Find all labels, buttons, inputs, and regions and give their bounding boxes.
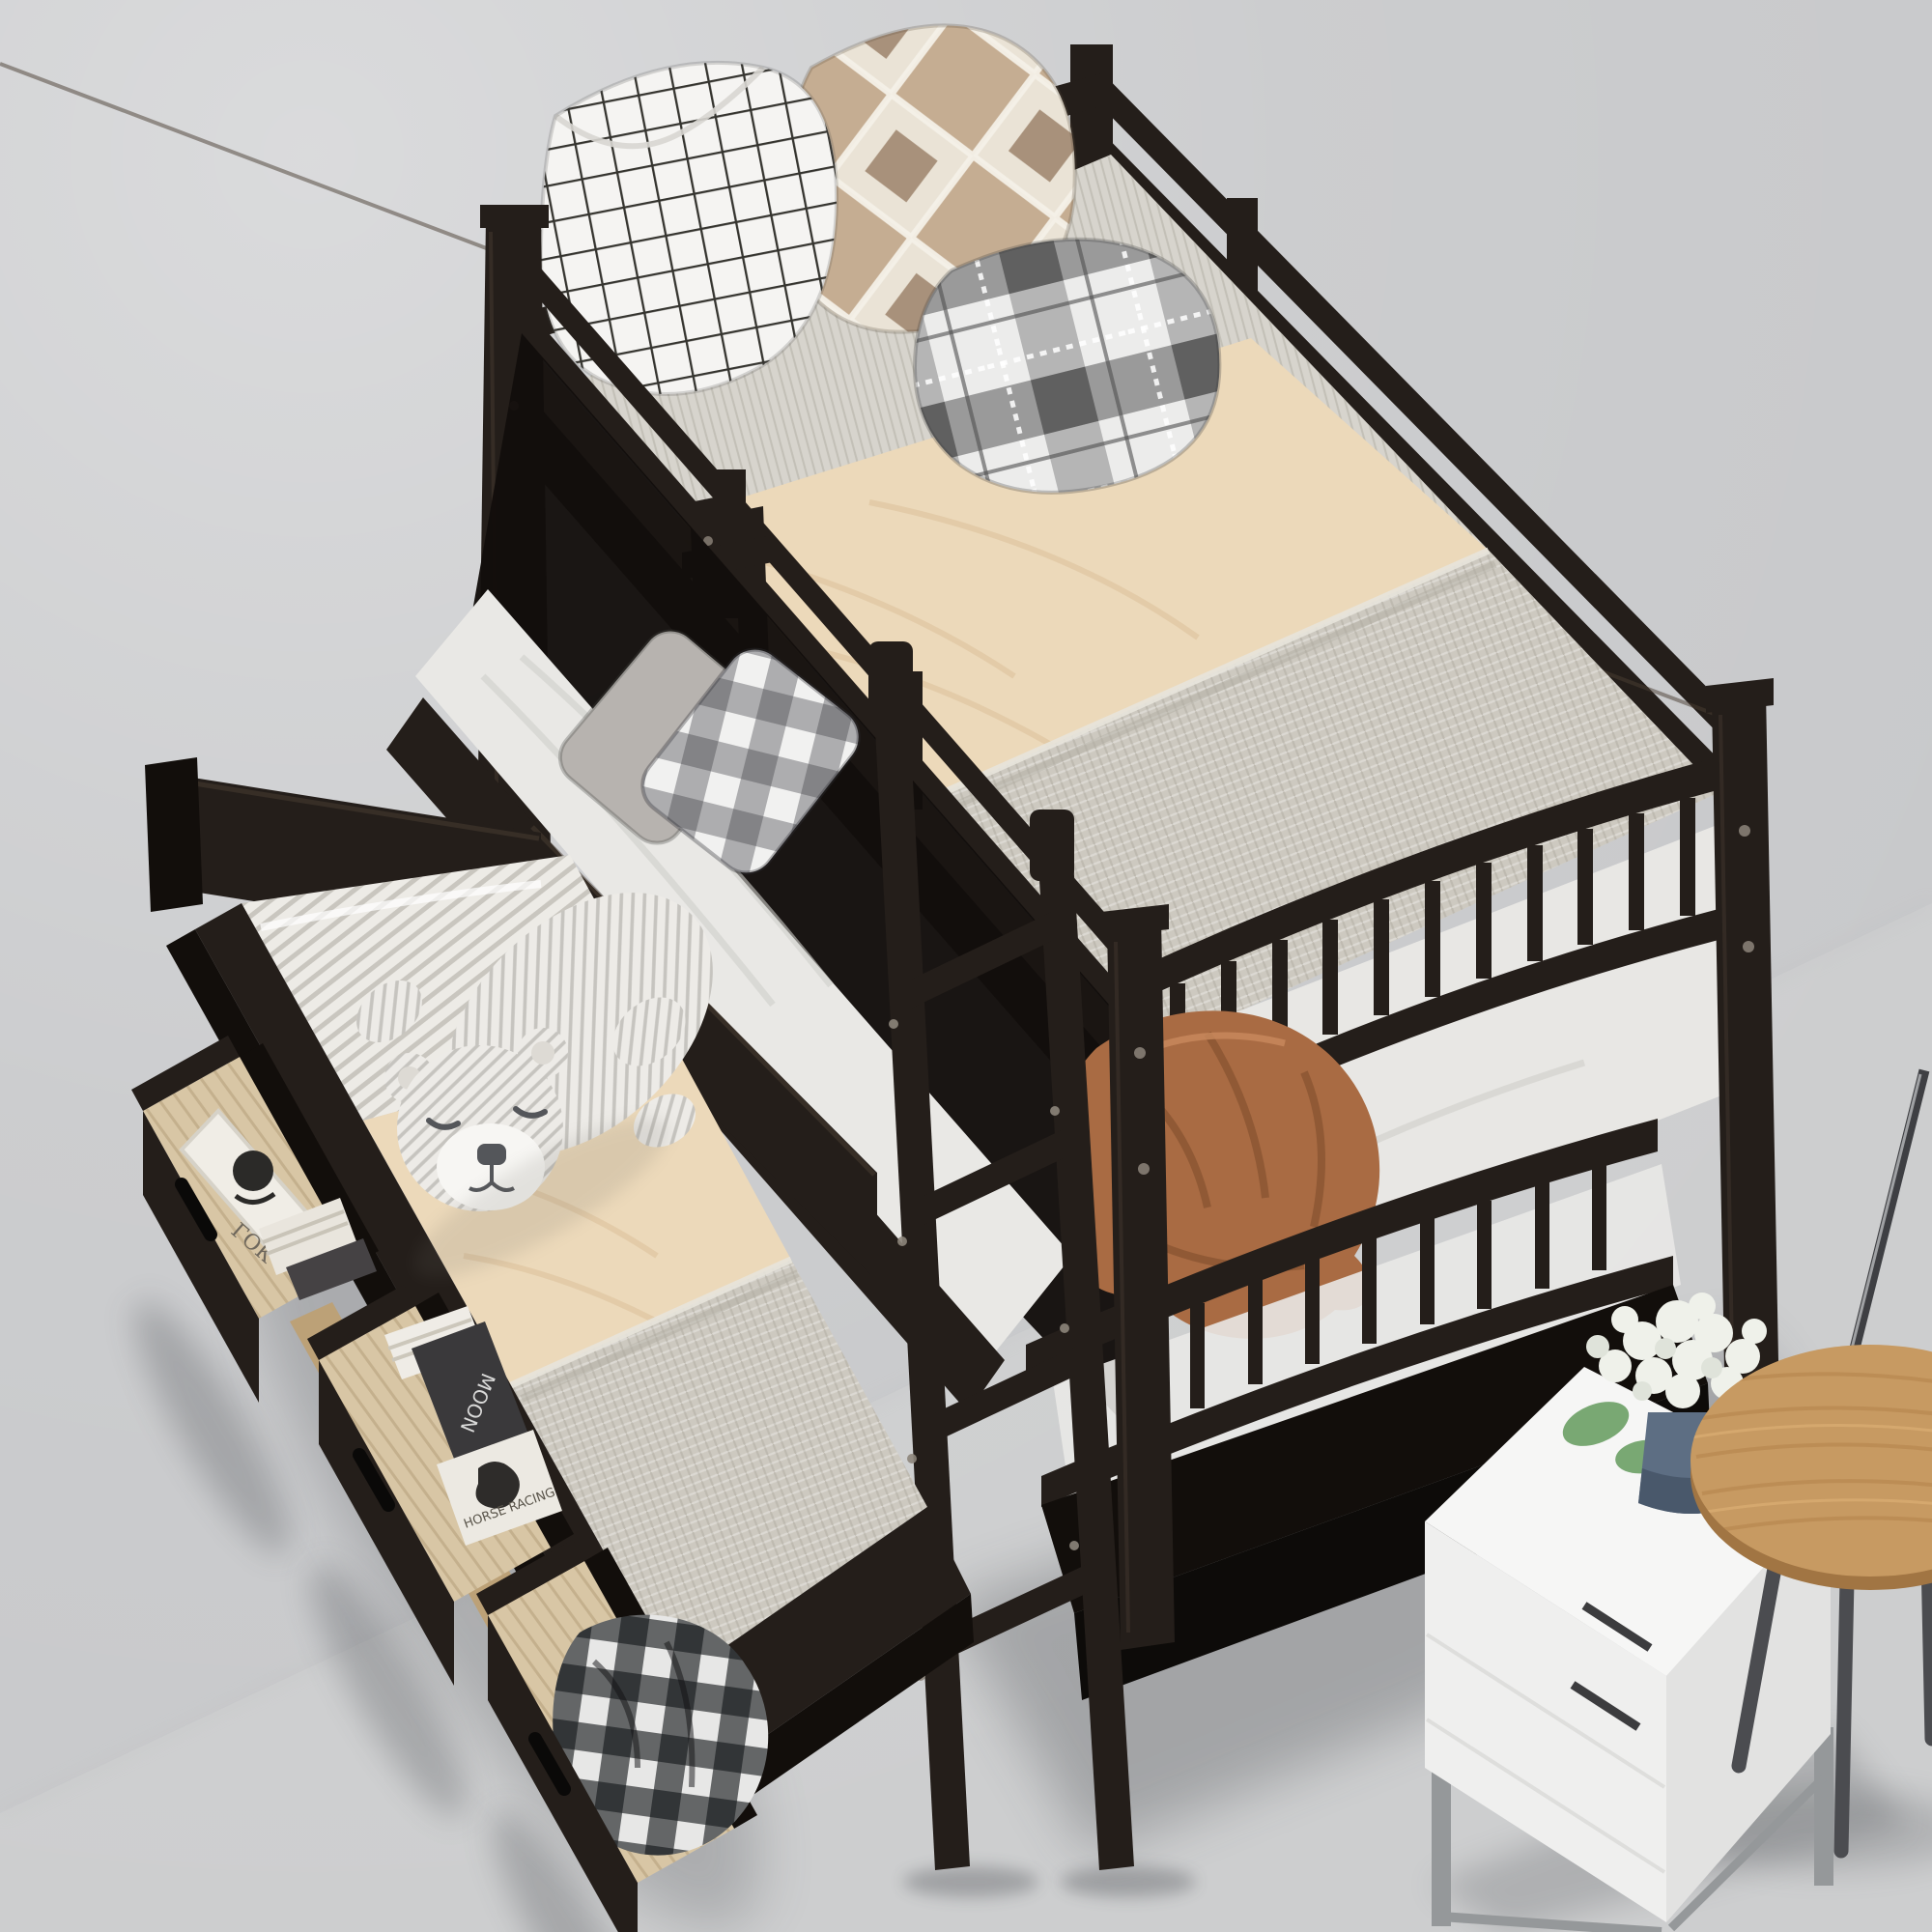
- stool-leg-2: [1841, 1580, 1847, 1851]
- product-photo: ГОК MOON: [0, 0, 1932, 1932]
- teddy-nose: [477, 1144, 506, 1165]
- stool-leg-3: [1928, 1557, 1932, 1739]
- ladder-hook-left: [868, 641, 913, 713]
- trundle-head-post: [145, 757, 203, 912]
- book-cover-art: [233, 1151, 273, 1191]
- plaid-pillow: [915, 240, 1219, 493]
- ladder-foot-shadow-right: [1061, 1866, 1196, 1897]
- bunk-bed-scene: ГОК MOON: [0, 0, 1932, 1932]
- chrome-leg-front: [1432, 1764, 1451, 1926]
- chrome-leg-right: [1814, 1727, 1833, 1886]
- ladder-foot-shadow-left: [903, 1866, 1038, 1897]
